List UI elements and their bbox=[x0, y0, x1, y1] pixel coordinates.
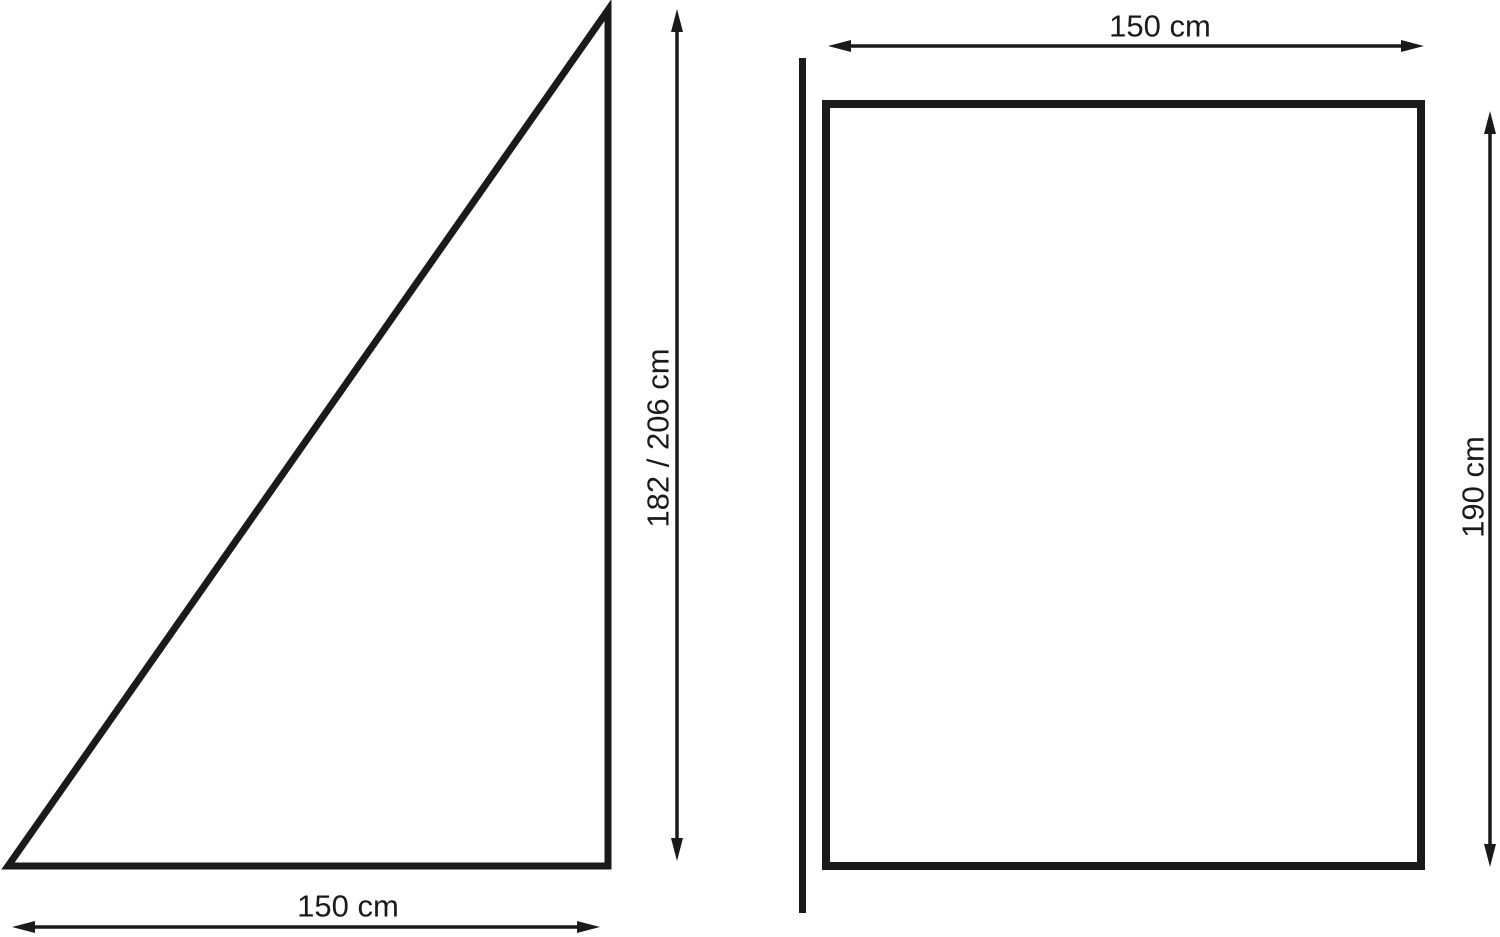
rectangle-outline bbox=[826, 104, 1421, 866]
rectangle-height-arrow-head-up-icon bbox=[1484, 111, 1496, 134]
rectangle-width-arrow-head-right-icon bbox=[1401, 40, 1424, 52]
triangle-outline bbox=[8, 10, 608, 866]
dimension-diagram: 150 cm 182 / 206 cm 150 cm 190 cm bbox=[0, 0, 1500, 937]
diagram-shapes bbox=[0, 0, 1500, 937]
rectangle-height-arrow-head-down-icon bbox=[1484, 844, 1496, 867]
triangle-height-label: 182 / 206 cm bbox=[643, 348, 674, 527]
triangle-width-arrow-head-left-icon bbox=[12, 921, 35, 933]
rectangle-width-arrow-head-left-icon bbox=[828, 40, 851, 52]
triangle-width-arrow-head-right-icon bbox=[577, 921, 600, 933]
rectangle-height-label: 190 cm bbox=[1458, 436, 1489, 538]
triangle-height-arrow-head-down-icon bbox=[671, 838, 683, 861]
rectangle-width-label: 150 cm bbox=[1109, 11, 1211, 42]
triangle-width-label: 150 cm bbox=[297, 891, 399, 922]
triangle-height-arrow-head-up-icon bbox=[671, 9, 683, 32]
